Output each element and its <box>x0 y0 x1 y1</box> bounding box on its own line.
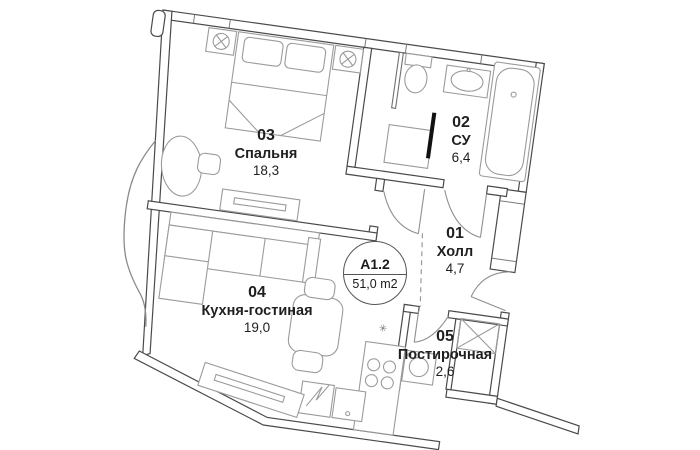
toilet-niche-wall <box>392 52 404 108</box>
nightstand-right <box>332 45 363 73</box>
laundry-door <box>414 311 448 347</box>
outlet-symbol: ✳ <box>378 323 388 335</box>
toilet <box>401 53 432 94</box>
floor-plan-svg: ✳ <box>0 0 700 450</box>
floorplan-page: ✳ 03 Спальня 18,3 02 СУ 6,4 <box>0 0 700 450</box>
zone-dashed-line <box>412 233 430 306</box>
bathroom-fixtures <box>384 48 541 182</box>
wall-bath-bottom-right <box>487 186 508 197</box>
bedroom-door <box>379 184 425 234</box>
washing-machine <box>402 350 437 385</box>
unit-area: 51,0 m2 <box>352 275 397 291</box>
chair-bottom <box>291 350 323 374</box>
bedroom-fixtures <box>151 23 364 227</box>
dishwasher <box>332 388 366 422</box>
entrance-door <box>470 267 511 311</box>
wall-shaft-divider <box>446 319 461 390</box>
wall-laundry-top-left <box>403 304 419 313</box>
sink <box>443 65 490 98</box>
chair-top <box>304 277 336 301</box>
unit-area-badge: A1.2 51,0 m2 <box>343 241 407 305</box>
kitchen-sink-unit <box>298 381 334 417</box>
dining-table <box>287 293 345 357</box>
wall-bedroom-hall-top <box>375 178 385 191</box>
bathroom-door <box>439 188 487 237</box>
bed <box>225 32 334 141</box>
bath-cabinet <box>384 125 433 169</box>
wall-stub-bottom-right <box>494 398 582 434</box>
floor-plan: ✳ <box>99 9 629 450</box>
unit-code: A1.2 <box>360 256 390 274</box>
wall-bath-bottom-left <box>346 166 444 188</box>
nightstand-left <box>206 28 237 56</box>
